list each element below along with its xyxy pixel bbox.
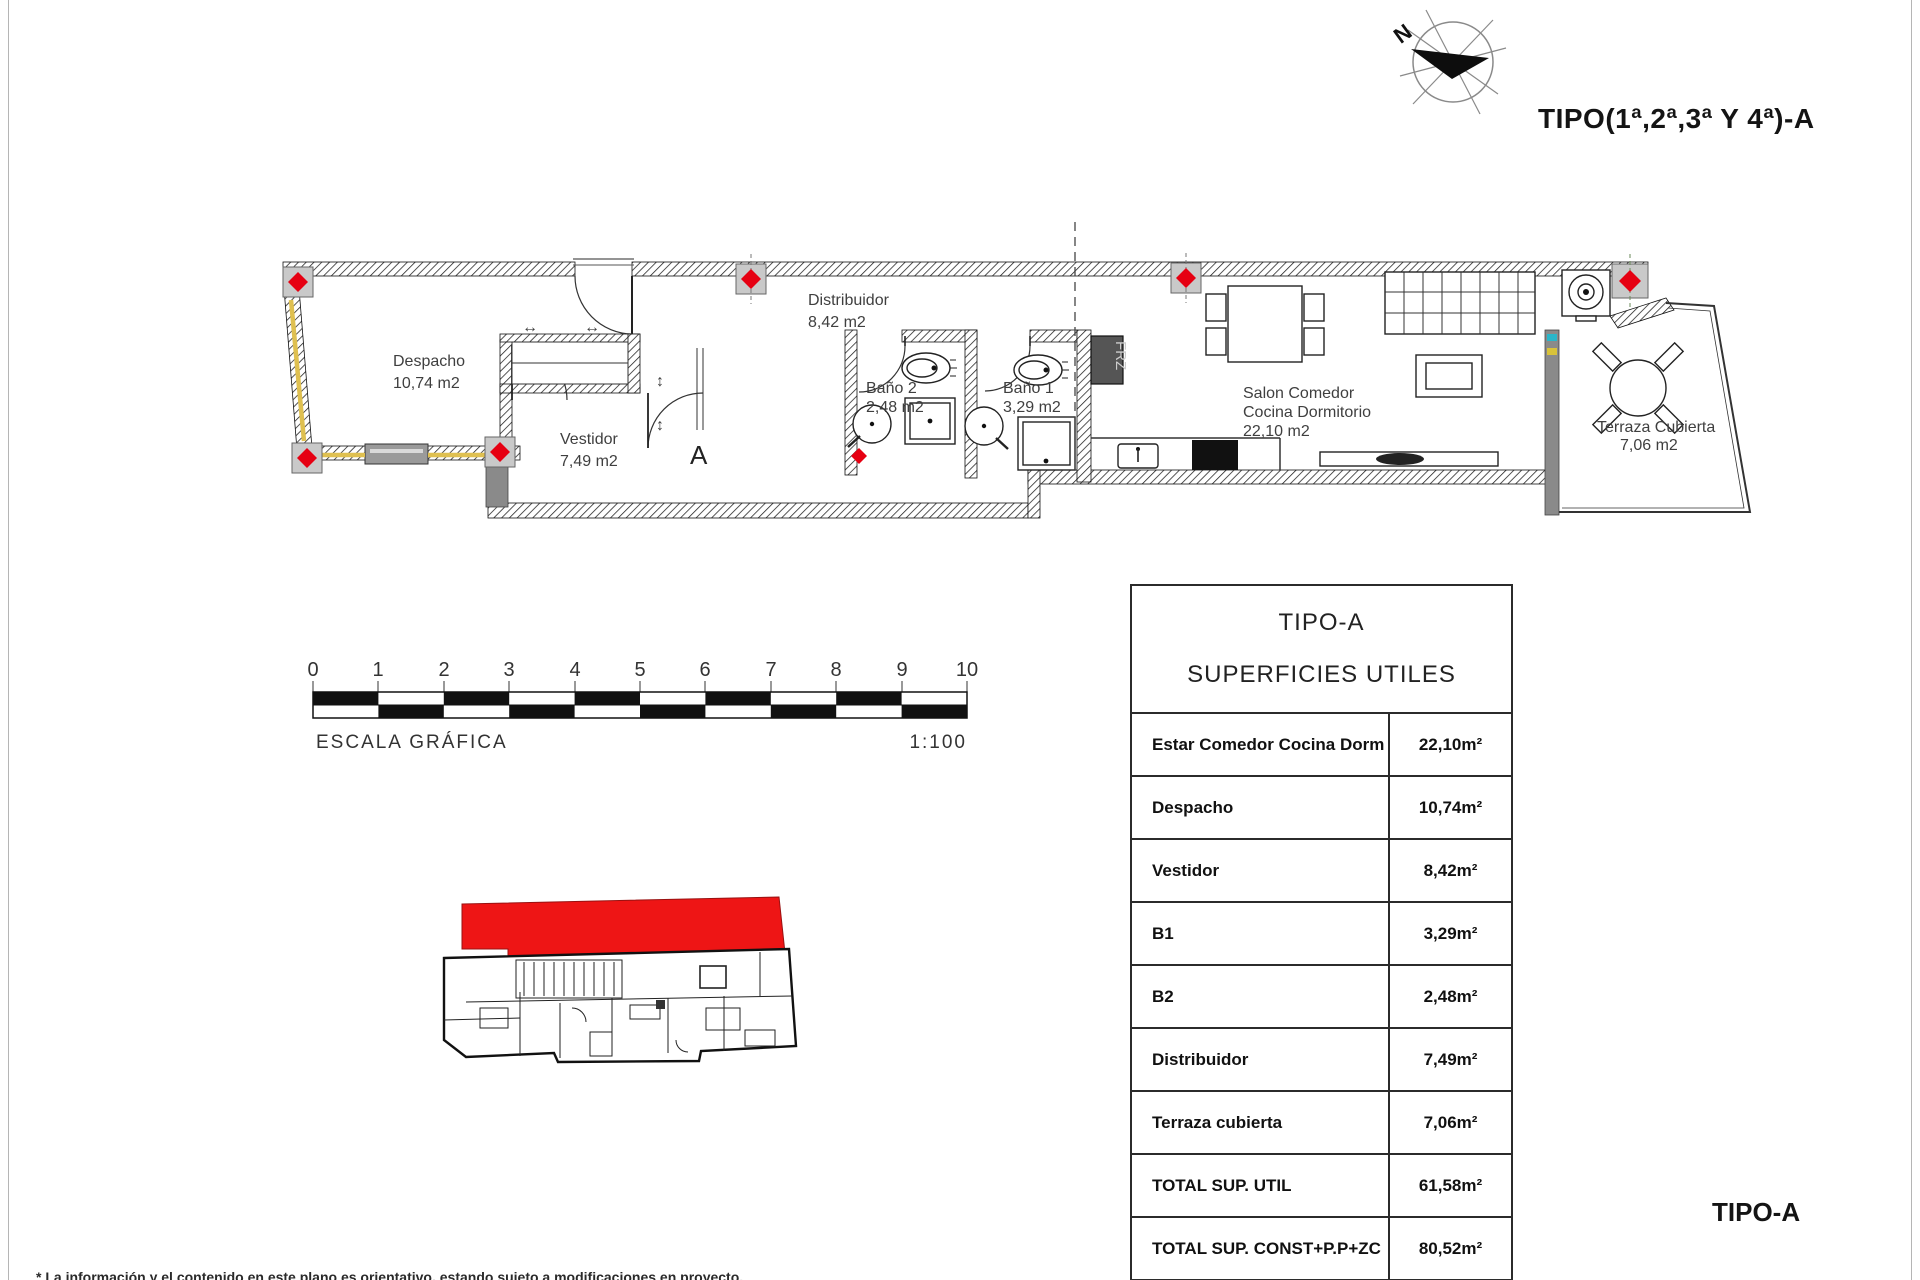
wall-terraza-left <box>1545 330 1559 515</box>
row-value: 2,48m² <box>1388 966 1511 1027</box>
table-row: Terraza cubierta 7,06m² <box>1132 1090 1511 1153</box>
column-marker <box>292 443 322 473</box>
scale-ratio: 1:100 <box>909 732 967 753</box>
room-label: Baño 1 <box>1003 380 1054 397</box>
floor-plan: FRZ <box>283 222 1750 518</box>
window-despacho-glass <box>370 449 423 453</box>
scale-tick: 0 <box>307 659 318 681</box>
column-marker <box>1171 253 1201 303</box>
wall-despacho-divider <box>500 340 512 450</box>
row-label: Terraza cubierta <box>1132 1092 1388 1153</box>
room-label: Terraza Cubierta <box>1597 419 1715 436</box>
scale-tick: 9 <box>896 659 907 681</box>
chair-icon <box>1304 328 1324 355</box>
hob-icon <box>1192 440 1238 470</box>
room-label: Vestidor <box>560 431 618 448</box>
row-value: 7,06m² <box>1388 1092 1511 1153</box>
row-label: B2 <box>1132 966 1388 1027</box>
unit-highlight <box>462 897 785 958</box>
table-row: Distribuidor 7,49m² <box>1132 1027 1511 1090</box>
table-row: TOTAL SUP. UTIL 61,58m² <box>1132 1153 1511 1216</box>
row-label: TOTAL SUP. CONST+P.P+ZC <box>1132 1218 1388 1279</box>
scale-tick: 5 <box>634 659 645 681</box>
north-label: N <box>1389 19 1417 49</box>
scale-tick: 7 <box>765 659 776 681</box>
table-row: B1 3,29m² <box>1132 901 1511 964</box>
row-label: Vestidor <box>1132 840 1388 901</box>
row-label: Distribuidor <box>1132 1029 1388 1090</box>
column-marker <box>283 267 313 297</box>
room-area: 7,49 m2 <box>560 453 618 470</box>
scale-tick: 3 <box>503 659 514 681</box>
chair-icon <box>1593 343 1621 371</box>
wall-bano1-top <box>1030 330 1077 342</box>
kitchen-counter <box>1091 438 1280 470</box>
scale-tick: 2 <box>438 659 449 681</box>
wall-closet-bottom <box>500 384 640 393</box>
shower-icon <box>1018 417 1075 470</box>
room-area: 22,10 m2 <box>1243 423 1310 440</box>
row-value: 22,10m² <box>1388 714 1511 775</box>
wall-top-left <box>283 262 575 276</box>
room-label: Cocina Dormitorio <box>1243 404 1371 421</box>
bench <box>1320 452 1498 466</box>
building-outline <box>444 949 796 1062</box>
table-row: Vestidor 8,42m² <box>1132 838 1511 901</box>
table-subtitle: SUPERFICIES UTILES <box>1187 661 1456 689</box>
sheet-title: TIPO(1ª,2ª,3ª Y 4ª)-A <box>1538 103 1815 135</box>
room-area: 8,42 m2 <box>808 314 866 331</box>
scale-tick: 8 <box>830 659 841 681</box>
slide-arrow-icon: ↕ <box>656 417 664 434</box>
room-label: Baño 2 <box>866 380 917 397</box>
utility-mark-cyan <box>1547 334 1557 341</box>
location-plan <box>444 897 796 1062</box>
wall-lavadero-slant <box>1610 298 1674 328</box>
wall-bano1-right <box>1077 330 1091 482</box>
row-label: TOTAL SUP. UTIL <box>1132 1155 1388 1216</box>
fridge-label: FRZ <box>1112 341 1129 370</box>
table-row: TOTAL SUP. CONST+P.P+ZC 80,52m² <box>1132 1216 1511 1279</box>
section-marker-label: A <box>690 440 708 470</box>
scale-bar: 0 1 2 3 4 5 6 7 8 9 10 <box>307 659 978 753</box>
building-core <box>656 1000 665 1009</box>
scale-tick: 6 <box>699 659 710 681</box>
wardrobe-grid <box>1385 272 1535 334</box>
row-value: 10,74m² <box>1388 777 1511 838</box>
scale-tick: 4 <box>569 659 580 681</box>
plan-canvas: N <box>0 0 1920 1280</box>
table-row: Estar Comedor Cocina Dorm 22,10m² <box>1132 712 1511 775</box>
wall-vestidor-bottom <box>488 503 1028 518</box>
room-label: Distribuidor <box>808 292 890 309</box>
chair-icon <box>1206 328 1226 355</box>
slide-arrow-icon: ↕ <box>656 373 664 390</box>
surface-table-header: TIPO-A SUPERFICIES UTILES <box>1132 586 1511 712</box>
slide-arrow-icon: ↔ <box>522 319 538 336</box>
utility-mark-yellow <box>1547 348 1557 355</box>
washing-machine-icon <box>1562 270 1610 321</box>
terraza <box>1559 303 1750 512</box>
wall-salon-bottom <box>1028 470 1558 484</box>
chair-icon <box>1655 343 1683 371</box>
room-area: 3,29 m2 <box>1003 399 1061 416</box>
chair-icon <box>1304 294 1324 321</box>
room-label: Salon Comedor <box>1243 385 1355 402</box>
toilet-icon <box>902 353 957 383</box>
dining-table <box>1206 286 1324 362</box>
room-area: 2,48 m2 <box>866 399 924 416</box>
room-area: 10,74 m2 <box>393 375 460 392</box>
wall-bano-divider <box>965 330 977 478</box>
table-title: TIPO-A <box>1278 609 1364 637</box>
column-marker <box>485 437 515 467</box>
terrace-table-icon <box>1610 360 1666 416</box>
north-compass-icon: N <box>1389 10 1506 114</box>
drawing-sheet: N <box>0 0 1920 1280</box>
row-value: 8,42m² <box>1388 840 1511 901</box>
fridge: FRZ <box>1091 336 1129 384</box>
table-row: B2 2,48m² <box>1132 964 1511 1027</box>
chair-icon <box>1206 294 1226 321</box>
disclaimer-note: * La información y el contenido en este … <box>36 1269 743 1280</box>
table-row: Despacho 10,74m² <box>1132 775 1511 838</box>
slide-arrow-icon: ↔ <box>584 319 600 336</box>
row-label: Despacho <box>1132 777 1388 838</box>
wall-step <box>1028 470 1040 518</box>
column-marker <box>736 254 766 304</box>
row-value: 7,49m² <box>1388 1029 1511 1090</box>
scale-tick: 1 <box>372 659 383 681</box>
row-value: 3,29m² <box>1388 903 1511 964</box>
row-label: Estar Comedor Cocina Dorm <box>1132 714 1388 775</box>
type-label: TIPO-A <box>1712 1197 1800 1228</box>
window-despacho <box>365 444 428 464</box>
row-value: 80,52m² <box>1388 1218 1511 1279</box>
row-value: 61,58m² <box>1388 1155 1511 1216</box>
wall-closet-right <box>628 334 640 393</box>
row-label: B1 <box>1132 903 1388 964</box>
wall-closet-top <box>500 334 640 342</box>
scale-tick: 10 <box>956 659 978 681</box>
room-label: Despacho <box>393 353 465 370</box>
surface-table: TIPO-A SUPERFICIES UTILES Estar Comedor … <box>1130 584 1513 1280</box>
tv-icon <box>1416 355 1482 397</box>
scale-caption: ESCALA GRÁFICA <box>316 732 508 753</box>
room-area: 7,06 m2 <box>1620 437 1678 454</box>
